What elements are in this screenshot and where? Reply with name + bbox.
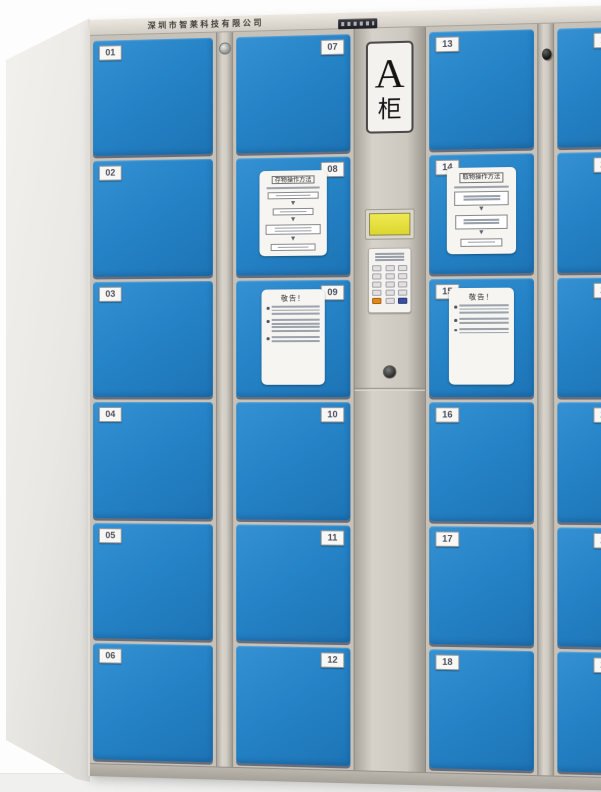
locker-door[interactable]: 16 [429, 400, 534, 524]
arrow-down-icon [479, 230, 483, 236]
flow-step-box [455, 214, 507, 229]
locker-cabinet-photo: 深圳市智莱科技有限公司 01 02 03 04 05 06 07 08 [0, 0, 601, 792]
door-number-plate: 20 [593, 157, 601, 173]
door-08[interactable]: 08 存物操作方法 [236, 156, 350, 275]
lcd-frame [365, 209, 415, 240]
cabinet: 深圳市智莱科技有限公司 01 02 03 04 05 06 07 08 [88, 5, 601, 791]
door-21[interactable]: 21 [557, 277, 601, 397]
door-13[interactable]: 13 [429, 29, 534, 150]
door-10[interactable]: 10 [236, 402, 350, 520]
sticker-text-line [454, 185, 509, 188]
door-number-plate: 16 [435, 407, 459, 422]
door-11[interactable]: 11 [236, 524, 350, 643]
door-04[interactable]: 04 [93, 402, 213, 519]
door-07[interactable]: 07 [236, 34, 350, 154]
keypad-keys [372, 265, 407, 304]
locker-door[interactable]: 10 [236, 400, 350, 523]
door-15[interactable]: 15 敬告！ [429, 278, 534, 397]
locker-door[interactable]: 08 存物操作方法 [236, 154, 350, 278]
locker-door[interactable]: 20 [557, 149, 601, 275]
locker-door[interactable]: 11 [236, 521, 350, 645]
door-number-plate: 21 [593, 282, 601, 298]
keypad-key-orange[interactable] [372, 298, 381, 304]
cabinet-sign-letter: A [375, 52, 405, 96]
notice-bullet [267, 305, 320, 316]
lcd-display [369, 213, 410, 236]
locker-door[interactable]: 07 [236, 31, 350, 156]
door-23[interactable]: 23 [557, 527, 601, 648]
keypad-key[interactable] [398, 281, 407, 287]
door-06[interactable]: 06 [93, 643, 213, 762]
locker-door[interactable]: 22 [557, 400, 601, 525]
lock-icon[interactable] [218, 42, 230, 54]
door-01[interactable]: 01 [93, 37, 213, 156]
door-03[interactable]: 03 [93, 280, 213, 397]
arrow-down-icon [479, 207, 483, 213]
door-number-plate: 13 [435, 36, 459, 52]
door-number-plate: 24 [593, 657, 601, 673]
door-column-3: 13 14 取物操作方法 15 敬告 [426, 24, 537, 775]
sticker-title: 取物操作方法 [459, 172, 503, 183]
door-number-plate: 02 [99, 165, 122, 180]
locker-door[interactable]: 24 [557, 649, 601, 775]
door-number-plate: 11 [321, 530, 345, 546]
keypad-key[interactable] [385, 265, 394, 271]
locker-door[interactable]: 06 [93, 641, 213, 765]
arrow-down-icon [291, 236, 295, 242]
locker-door[interactable]: 09 敬告！ [236, 277, 350, 400]
door-22[interactable]: 22 [557, 402, 601, 522]
door-09[interactable]: 09 敬告！ [236, 279, 350, 397]
door-column-2: 07 08 存物操作方法 09 [233, 29, 353, 770]
notice-bullet [454, 318, 509, 326]
door-column-1: 01 02 03 04 05 06 [90, 33, 216, 767]
keyhole-lock-icon[interactable] [542, 48, 552, 60]
keypad-key[interactable] [385, 273, 394, 279]
flow-step-box [454, 190, 509, 205]
door-12[interactable]: 12 [236, 646, 350, 766]
notice-sticker: 敬告！ [449, 287, 514, 384]
door-number-plate: 17 [435, 531, 459, 547]
door-column-4: 19 20 21 22 23 24 [554, 22, 601, 778]
flow-step-box [273, 208, 314, 216]
door-18[interactable]: 18 [429, 649, 534, 770]
notice-bullet [454, 328, 509, 336]
door-number-plate: 12 [321, 652, 345, 668]
locker-door[interactable]: 04 [93, 400, 213, 522]
notice-bullet [454, 304, 509, 315]
keypad-label [375, 253, 404, 262]
keypad-key[interactable] [372, 290, 381, 296]
keypad [368, 247, 411, 313]
door-20[interactable]: 20 [557, 152, 601, 273]
notice-sticker: 敬告！ [262, 289, 325, 385]
cabinet-side-panel [6, 18, 90, 782]
door-19[interactable]: 19 [557, 26, 601, 147]
locker-door[interactable]: 19 [557, 24, 601, 150]
company-name: 深圳市智莱科技有限公司 [148, 17, 264, 31]
retrieve-instructions-sticker: 取物操作方法 [447, 167, 516, 254]
cabinet-sign: A 柜 [366, 41, 414, 134]
door-02[interactable]: 02 [93, 159, 213, 277]
door-number-plate: 05 [99, 528, 122, 543]
flow-step-box [460, 238, 502, 247]
control-panel: A 柜 [354, 27, 426, 772]
sticker-title: 敬告！ [469, 292, 494, 301]
notice-bullet [267, 336, 320, 344]
door-number-plate: 23 [593, 532, 601, 548]
notice-bullet [267, 319, 320, 334]
door-number-plate: 07 [321, 39, 345, 55]
keypad-key[interactable] [385, 298, 394, 304]
panel-lock-icon[interactable] [383, 365, 396, 378]
locker-door[interactable]: 23 [557, 524, 601, 650]
flow-step-box [268, 191, 319, 200]
keypad-key[interactable] [398, 273, 407, 279]
door-24[interactable]: 24 [557, 652, 601, 773]
locker-door[interactable]: 05 [93, 520, 213, 643]
door-number-plate: 04 [99, 407, 122, 422]
keypad-key[interactable] [398, 265, 407, 271]
locker-door[interactable]: 14 取物操作方法 [429, 151, 534, 276]
keypad-key[interactable] [385, 290, 394, 296]
door-16[interactable]: 16 [429, 402, 534, 521]
door-number-plate: 06 [99, 648, 122, 663]
locker-door[interactable]: 02 [93, 156, 213, 279]
arrow-down-icon [291, 217, 295, 223]
brand-logo [338, 18, 377, 29]
locker-door[interactable]: 03 [93, 278, 213, 400]
keypad-key[interactable] [385, 281, 394, 287]
door-number-plate: 22 [593, 407, 601, 423]
deposit-instructions-sticker: 存物操作方法 [259, 170, 326, 256]
divider [537, 24, 554, 776]
locker-door[interactable]: 15 敬告！ [429, 275, 534, 399]
sticker-title: 敬告！ [281, 294, 305, 303]
cabinet-sign-word: 柜 [378, 95, 402, 122]
keypad-key-blue[interactable] [398, 298, 407, 304]
door-14[interactable]: 14 取物操作方法 [429, 153, 534, 273]
door-number-plate: 18 [435, 654, 459, 670]
door-number-plate: 19 [593, 32, 601, 48]
locker-door[interactable]: 01 [93, 35, 213, 159]
locker-door[interactable]: 12 [236, 643, 350, 768]
keypad-key[interactable] [372, 273, 381, 279]
door-17[interactable]: 17 [429, 526, 534, 646]
panel-seam [355, 388, 425, 391]
divider [216, 32, 233, 767]
door-number-plate: 01 [99, 45, 122, 61]
keypad-key[interactable] [372, 265, 381, 271]
cabinet-front: 01 02 03 04 05 06 07 08 存物操作方法 [90, 22, 601, 778]
sticker-text-line [267, 186, 320, 189]
door-number-plate: 03 [99, 286, 122, 301]
locker-door[interactable]: 21 [557, 274, 601, 399]
door-number-plate: 10 [321, 407, 345, 422]
sticker-title: 存物操作方法 [272, 175, 315, 184]
locker-door[interactable]: 18 [429, 647, 534, 773]
locker-door[interactable]: 13 [429, 26, 534, 152]
keypad-key[interactable] [372, 282, 381, 288]
flow-step-box [271, 244, 316, 251]
locker-door[interactable]: 17 [429, 523, 534, 648]
flow-step-box [266, 224, 321, 235]
arrow-down-icon [291, 201, 295, 207]
door-05[interactable]: 05 [93, 523, 213, 641]
keypad-key[interactable] [398, 289, 407, 295]
